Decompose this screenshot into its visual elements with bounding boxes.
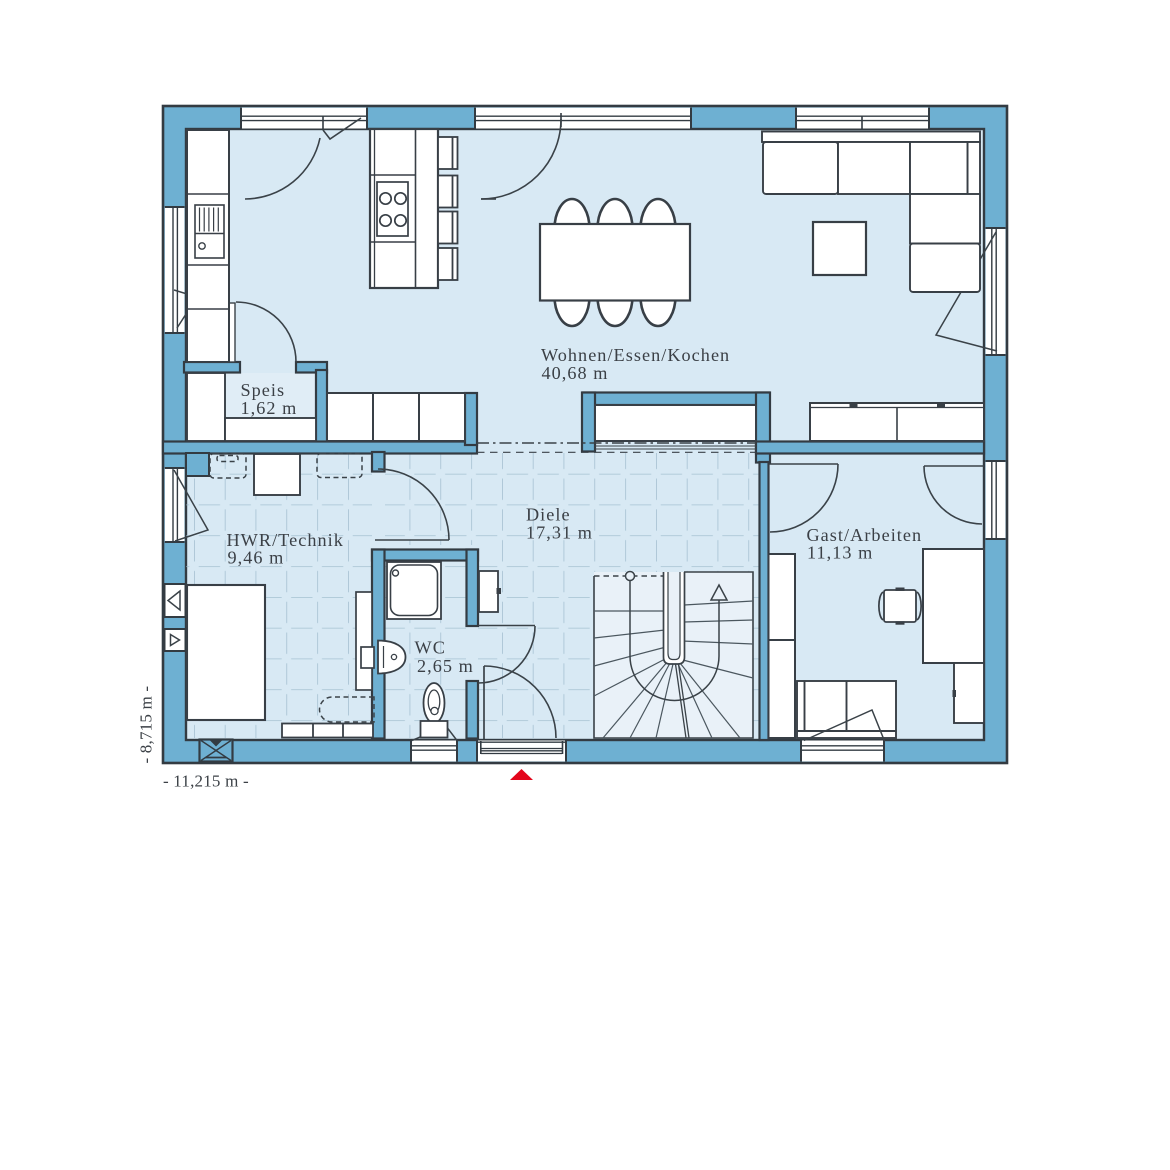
svg-text:- 8,715 m -: - 8,715 m -	[137, 686, 156, 764]
svg-text:9,46 m: 9,46 m	[228, 548, 285, 568]
svg-text:- 11,215 m -: - 11,215 m -	[163, 772, 249, 791]
svg-text:2,65 m: 2,65 m	[417, 656, 474, 676]
svg-text:17,31 m: 17,31 m	[526, 523, 593, 543]
svg-text:WC: WC	[415, 638, 446, 658]
svg-text:Speis: Speis	[241, 380, 286, 400]
svg-text:40,68 m: 40,68 m	[542, 363, 609, 383]
svg-text:1,62 m: 1,62 m	[241, 398, 298, 418]
svg-text:11,13 m: 11,13 m	[807, 543, 873, 563]
svg-text:Wohnen/Essen/Kochen: Wohnen/Essen/Kochen	[541, 345, 730, 365]
svg-text:Diele: Diele	[526, 505, 571, 525]
